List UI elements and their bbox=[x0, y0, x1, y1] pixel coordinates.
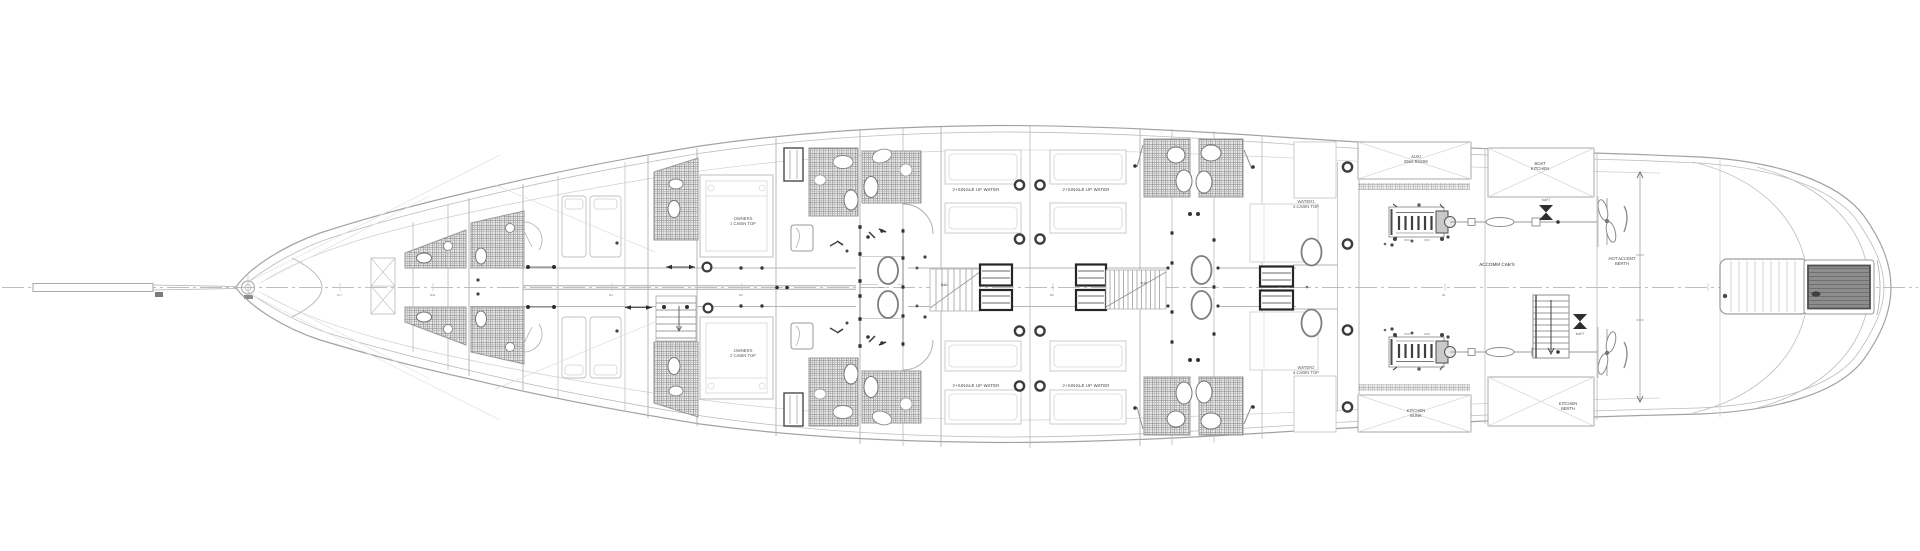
svg-text:3 CABIN TOP: 3 CABIN TOP bbox=[1293, 204, 1319, 209]
svg-text:BUNK: BUNK bbox=[1410, 413, 1422, 418]
svg-text:GW: GW bbox=[430, 293, 435, 297]
svg-text:KITCHEN: KITCHEN bbox=[1531, 166, 1549, 171]
svg-text:BERTH: BERTH bbox=[1615, 261, 1629, 266]
svg-text:1 CABIN TOP: 1 CABIN TOP bbox=[730, 221, 756, 226]
svg-text:B4A: B4A bbox=[941, 283, 948, 287]
svg-text:BERTH: BERTH bbox=[1561, 406, 1575, 411]
svg-text:2+SINGLE UP WATER: 2+SINGLE UP WATER bbox=[952, 383, 999, 388]
svg-text:KAPT: KAPT bbox=[1576, 332, 1584, 336]
svg-text:A77: A77 bbox=[337, 293, 343, 297]
svg-text:2+SINGLE UP WATER: 2+SINGLE UP WATER bbox=[1062, 383, 1109, 388]
svg-text:B3: B3 bbox=[739, 293, 743, 297]
svg-text:ACCOMM CAB'S: ACCOMM CAB'S bbox=[1479, 262, 1515, 267]
svg-text:4x18: 4x18 bbox=[1140, 281, 1147, 285]
svg-text:2 CABIN TOP: 2 CABIN TOP bbox=[730, 353, 756, 358]
svg-text:ENG ROOM: ENG ROOM bbox=[1404, 159, 1428, 164]
svg-text:2+SINGLE UP WATER: 2+SINGLE UP WATER bbox=[1062, 187, 1109, 192]
svg-text:B2: B2 bbox=[1050, 293, 1054, 297]
svg-text:B4: B4 bbox=[609, 293, 613, 297]
svg-text:B1: B1 bbox=[1442, 293, 1446, 297]
svg-text:KAPT: KAPT bbox=[1542, 198, 1550, 202]
svg-text:2+SINGLE UP WATER: 2+SINGLE UP WATER bbox=[952, 187, 999, 192]
svg-text:4 CABIN TOP: 4 CABIN TOP bbox=[1293, 370, 1319, 375]
